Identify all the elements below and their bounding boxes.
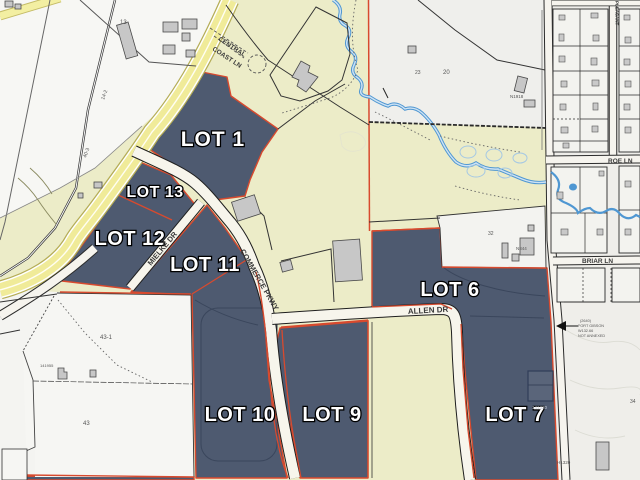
svg-text:141320: 141320 [532, 405, 548, 410]
svg-text:34: 34 [630, 399, 636, 405]
svg-text:LOT 6: LOT 6 [420, 279, 479, 301]
svg-text:32: 32 [488, 231, 494, 237]
svg-text:141955: 141955 [40, 363, 54, 368]
svg-text:20: 20 [443, 70, 450, 76]
svg-text:LOT 12: LOT 12 [95, 228, 166, 250]
svg-text:FORT GIBSON: FORT GIBSON [578, 324, 604, 328]
svg-text:N844: N844 [516, 246, 527, 251]
svg-text:(2640): (2640) [580, 319, 592, 323]
svg-text:43-1: 43-1 [100, 335, 113, 341]
svg-text:BRIAR LN: BRIAR LN [582, 258, 613, 265]
svg-text:NOT ANNEXED: NOT ANNEXED [578, 334, 605, 338]
svg-text:LOT 11: LOT 11 [170, 254, 240, 276]
svg-text:LOT 9: LOT 9 [302, 404, 361, 426]
svg-text:W132.66: W132.66 [578, 329, 593, 333]
svg-text:23: 23 [415, 70, 421, 76]
svg-text:LOT 13: LOT 13 [126, 184, 183, 201]
svg-text:PLEASANT: PLEASANT [615, 1, 620, 26]
svg-text:43: 43 [83, 421, 90, 427]
svg-text:N1918: N1918 [510, 94, 524, 99]
svg-text:H1320: H1320 [557, 460, 571, 465]
svg-text:13: 13 [120, 20, 127, 26]
svg-text:LOT 1: LOT 1 [181, 128, 246, 151]
svg-text:LOT 10: LOT 10 [205, 404, 276, 426]
svg-text:ROE LN: ROE LN [608, 158, 633, 165]
